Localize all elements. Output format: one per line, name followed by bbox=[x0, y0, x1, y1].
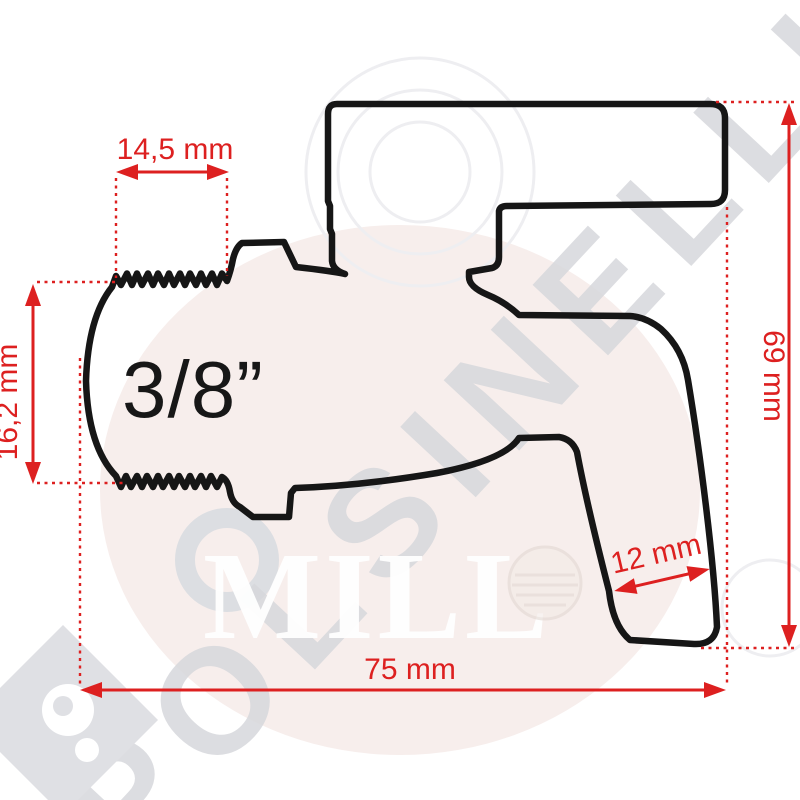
diagram-stage: POLSINELLI MILL 3/8” 14,5 mm 16,2 mm bbox=[0, 0, 800, 800]
watermark-white-text: MILL bbox=[203, 528, 552, 666]
thread-size-label: 3/8” bbox=[122, 345, 264, 434]
arrowhead-left bbox=[116, 164, 138, 180]
dim-thread-length-label: 14,5 mm bbox=[117, 133, 234, 166]
tap-dimension-drawing: POLSINELLI MILL 3/8” 14,5 mm 16,2 mm bbox=[0, 0, 800, 800]
arrowhead-right bbox=[207, 164, 229, 180]
dim-overall-length-label: 75 mm bbox=[364, 653, 456, 686]
arrowhead-right bbox=[687, 561, 712, 582]
dim-overall-height-label: 69 mm bbox=[757, 330, 790, 422]
arrowhead-down bbox=[781, 625, 797, 647]
watermark-stamp bbox=[509, 547, 581, 619]
arrowhead-right bbox=[704, 682, 726, 698]
arrowhead-up bbox=[25, 284, 41, 306]
dim-thread-length: 14,5 mm bbox=[116, 133, 233, 278]
dim-thread-diameter-label: 16,2 mm bbox=[0, 344, 24, 461]
arrowhead-down bbox=[25, 462, 41, 484]
